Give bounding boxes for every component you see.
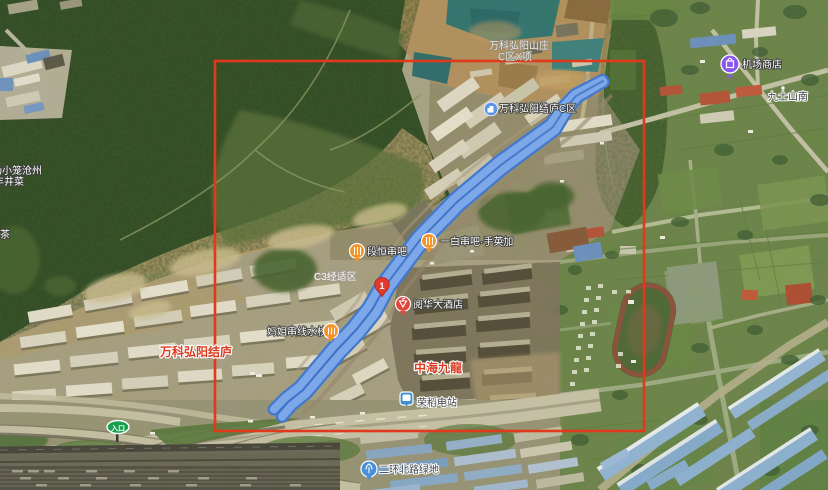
svg-text:一白串吧·手英加: 一白串吧·手英加 <box>440 235 513 248</box>
svg-text:段恒串吧: 段恒串吧 <box>367 245 407 258</box>
svg-text:C3经适区: C3经适区 <box>314 270 357 283</box>
svg-text:1: 1 <box>379 281 384 291</box>
svg-text:万科弘阳结庐C区: 万科弘阳结庐C区 <box>499 102 576 115</box>
svg-text:半茶: 半茶 <box>0 228 10 241</box>
svg-text:九土山南: 九土山南 <box>768 90 808 103</box>
svg-text:万科弘阳山庄: 万科弘阳山庄 <box>489 39 549 52</box>
svg-text:荣稻电站: 荣稻电站 <box>417 396 457 409</box>
svg-text:中海九龍: 中海九龍 <box>414 360 462 375</box>
svg-text:妈姐串线水校: 妈姐串线水校 <box>267 325 327 338</box>
svg-text:C区X项: C区X项 <box>498 51 532 63</box>
svg-text:阅华大酒店: 阅华大酒店 <box>413 298 463 311</box>
svg-text:丰井菜: 丰井菜 <box>0 175 24 188</box>
svg-text:二环北路绿地: 二环北路绿地 <box>379 463 439 476</box>
svg-text:机场商店: 机场商店 <box>742 58 782 71</box>
svg-text:万科弘阳结庐: 万科弘阳结庐 <box>159 344 232 359</box>
svg-text:场小笼沧州: 场小笼沧州 <box>0 164 42 177</box>
svg-text:入口: 入口 <box>110 425 125 433</box>
